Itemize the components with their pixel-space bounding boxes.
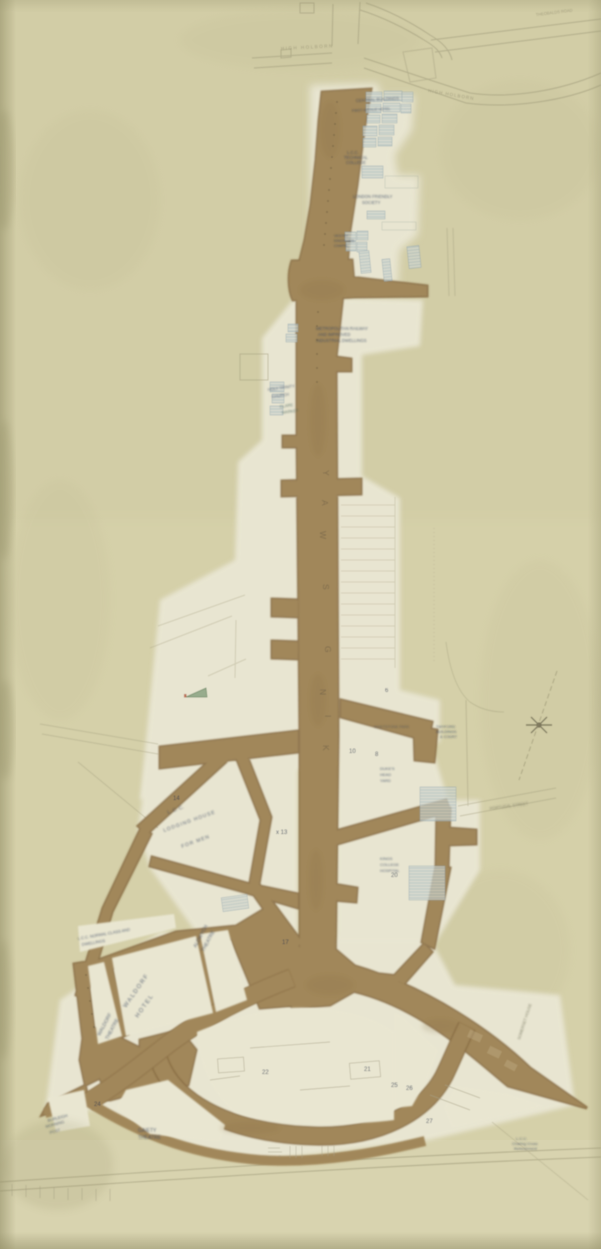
- svg-text:LONDON FRIENDLY: LONDON FRIENDLY: [353, 194, 393, 199]
- svg-text:AND IMPROVED: AND IMPROVED: [318, 332, 350, 337]
- svg-text:CHAPEL: CHAPEL: [334, 244, 348, 248]
- svg-text:KINGS: KINGS: [380, 856, 393, 861]
- svg-text:20: 20: [391, 873, 398, 879]
- svg-text:— ≈: — ≈: [268, 1154, 283, 1160]
- svg-text:COLLEGE: COLLEGE: [346, 160, 366, 165]
- svg-text:& COURT: & COURT: [440, 735, 458, 739]
- svg-text:26: 26: [406, 1086, 413, 1092]
- svg-text:10: 10: [349, 749, 356, 755]
- svg-text:N: N: [318, 689, 328, 695]
- svg-text:YARD: YARD: [380, 778, 391, 783]
- svg-text:24: 24: [94, 1102, 101, 1108]
- svg-text:I: I: [323, 715, 333, 717]
- svg-text:G: G: [323, 646, 333, 653]
- svg-text:WHETSTONE PARK: WHETSTONE PARK: [374, 725, 410, 729]
- svg-text:DUKE'S: DUKE'S: [380, 766, 395, 771]
- svg-text:14: 14: [173, 796, 180, 802]
- svg-text:x 13: x 13: [276, 830, 288, 836]
- svg-text:METROPOLITAN RAILWAY: METROPOLITAN RAILWAY: [316, 326, 368, 331]
- svg-text:22: 22: [262, 1070, 269, 1076]
- svg-text:KINGSGATE: KINGSGATE: [334, 239, 355, 243]
- svg-text:K: K: [321, 745, 331, 751]
- svg-text:W: W: [318, 531, 328, 539]
- svg-text:INDUSTRIAL DWELLINGS: INDUSTRIAL DWELLINGS: [316, 338, 367, 343]
- svg-text:17: 17: [282, 940, 289, 946]
- svg-text:GAIETY: GAIETY: [138, 1128, 157, 1134]
- svg-text:VESTRY: VESTRY: [334, 234, 349, 238]
- svg-text:A: A: [320, 500, 330, 506]
- svg-text:Y: Y: [321, 470, 331, 476]
- svg-text:TWYFORD: TWYFORD: [436, 725, 455, 729]
- svg-text:S: S: [321, 584, 331, 590]
- svg-text:21: 21: [364, 1067, 371, 1073]
- svg-text:Refreshment: Refreshment: [514, 1146, 538, 1151]
- svg-text:SOCIETY: SOCIETY: [362, 200, 381, 205]
- svg-text:BUILDINGS: BUILDINGS: [436, 730, 457, 734]
- svg-text:25: 25: [391, 1083, 398, 1089]
- svg-text:27: 27: [426, 1119, 433, 1125]
- svg-text:HEAD: HEAD: [380, 772, 391, 777]
- svg-text:COLLEGE: COLLEGE: [380, 862, 399, 867]
- svg-text:THEATRE: THEATRE: [138, 1135, 162, 1141]
